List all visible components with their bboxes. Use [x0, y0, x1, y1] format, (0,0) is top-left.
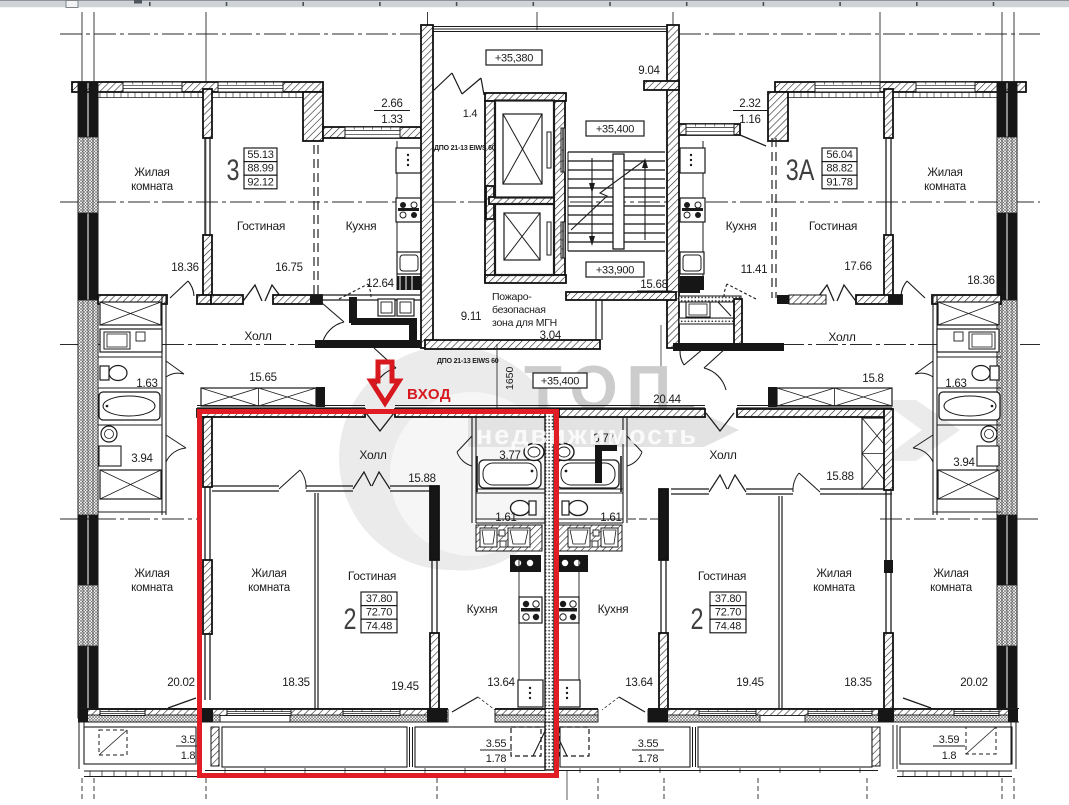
svg-text:Холл: Холл: [828, 330, 856, 344]
svg-text:2: 2: [343, 602, 356, 635]
svg-text:1.8: 1.8: [942, 750, 957, 762]
svg-text:1.63: 1.63: [136, 378, 157, 390]
svg-text:Кухня: Кухня: [346, 219, 377, 233]
svg-text:Кухня: Кухня: [467, 602, 498, 616]
svg-text:13.64: 13.64: [487, 677, 515, 689]
svg-text:Жилая: Жилая: [816, 568, 851, 580]
svg-text:74.48: 74.48: [715, 620, 741, 632]
svg-text:92.12: 92.12: [247, 176, 273, 188]
svg-text:88.99: 88.99: [247, 163, 273, 175]
svg-text:15.65: 15.65: [249, 372, 277, 384]
svg-text:Жилая: Жилая: [933, 568, 968, 580]
svg-text:74.48: 74.48: [366, 620, 392, 632]
svg-text:1.63: 1.63: [945, 378, 966, 390]
svg-text:ДПО 21-13 EIWS 60: ДПО 21-13 EIWS 60: [434, 145, 496, 152]
svg-text:18.36: 18.36: [171, 262, 199, 274]
svg-text:Холл: Холл: [244, 329, 272, 343]
svg-text:17.66: 17.66: [844, 261, 872, 273]
svg-text:16.75: 16.75: [275, 262, 303, 274]
svg-text:недвижимость: недвижимость: [476, 420, 698, 450]
svg-text:2.32: 2.32: [739, 98, 760, 110]
svg-text:9.11: 9.11: [461, 311, 482, 323]
svg-text:Жилая: Жилая: [251, 568, 286, 580]
svg-text:3.55: 3.55: [638, 738, 659, 750]
svg-text:3А: 3А: [786, 153, 815, 186]
svg-text:2: 2: [690, 602, 703, 635]
svg-text:1.4: 1.4: [463, 108, 478, 120]
svg-text:Жилая: Жилая: [134, 167, 169, 179]
svg-text:комната: комната: [930, 582, 973, 594]
svg-text:20.02: 20.02: [167, 677, 195, 689]
svg-text:88.82: 88.82: [826, 163, 852, 175]
svg-text:37.80: 37.80: [366, 593, 392, 605]
svg-text:72.70: 72.70: [715, 607, 741, 619]
svg-text:Жилая: Жилая: [927, 167, 962, 179]
svg-text:комната: комната: [924, 181, 967, 193]
svg-text:комната: комната: [248, 582, 291, 594]
svg-text:18.35: 18.35: [282, 677, 310, 689]
svg-text:3.55: 3.55: [486, 738, 507, 750]
svg-text:15.88: 15.88: [826, 471, 854, 483]
svg-text:1.61: 1.61: [600, 512, 621, 524]
svg-text:15.68: 15.68: [640, 279, 668, 291]
svg-text:13.64: 13.64: [625, 677, 653, 689]
svg-text:15.8: 15.8: [862, 373, 883, 385]
svg-text:комната: комната: [131, 582, 174, 594]
svg-text:1.78: 1.78: [486, 753, 507, 765]
svg-text:20.02: 20.02: [960, 677, 988, 689]
svg-text:3.77: 3.77: [499, 450, 520, 462]
svg-text:1.61: 1.61: [495, 512, 516, 524]
svg-text:9.04: 9.04: [638, 65, 660, 77]
svg-text:3.59: 3.59: [939, 734, 960, 746]
svg-text:19.45: 19.45: [736, 677, 764, 689]
svg-text:37.80: 37.80: [715, 593, 741, 605]
svg-text:безопасная: безопасная: [492, 304, 546, 316]
svg-text:2.66: 2.66: [381, 98, 402, 110]
svg-text:20.44: 20.44: [653, 394, 681, 406]
svg-text:12.64: 12.64: [366, 278, 394, 290]
svg-text:3.94: 3.94: [953, 457, 975, 469]
svg-text:3: 3: [226, 153, 239, 186]
svg-text:18.36: 18.36: [967, 275, 995, 287]
svg-text:Холл: Холл: [359, 448, 387, 462]
svg-text:Жилая: Жилая: [134, 568, 169, 580]
svg-text:Холл: Холл: [709, 448, 737, 462]
svg-text:Пожаро-: Пожаро-: [492, 291, 532, 303]
svg-text:зона для МГН: зона для МГН: [492, 317, 557, 329]
svg-text:18.35: 18.35: [844, 677, 872, 689]
svg-text:+35,400: +35,400: [541, 376, 579, 388]
svg-text:56.04: 56.04: [826, 149, 852, 161]
svg-text:15.88: 15.88: [408, 473, 436, 485]
svg-text:1.16: 1.16: [739, 114, 760, 126]
svg-text:1.33: 1.33: [381, 114, 402, 126]
svg-text:1.78: 1.78: [638, 753, 659, 765]
svg-text:91.78: 91.78: [826, 176, 852, 188]
svg-text:+33,900: +33,900: [596, 265, 634, 277]
svg-text:Гостиная: Гостиная: [698, 569, 746, 583]
svg-text:1.8: 1.8: [181, 750, 196, 762]
svg-text:комната: комната: [813, 582, 856, 594]
svg-text:ДПО 21-13 EIWS 60: ДПО 21-13 EIWS 60: [437, 358, 499, 365]
svg-text:3.94: 3.94: [131, 453, 153, 465]
svg-text:комната: комната: [131, 181, 174, 193]
svg-text:1650: 1650: [504, 366, 516, 390]
svg-text:Кухня: Кухня: [598, 602, 629, 616]
svg-text:Гостиная: Гостиная: [809, 219, 857, 233]
svg-text:19.45: 19.45: [391, 681, 419, 693]
svg-text:Гостиная: Гостиная: [348, 569, 396, 583]
svg-text:Гостиная: Гостиная: [237, 219, 285, 233]
svg-text:11.41: 11.41: [741, 264, 768, 276]
svg-text:72.70: 72.70: [366, 607, 392, 619]
svg-text:Кухня: Кухня: [726, 219, 757, 233]
svg-text:3.5: 3.5: [181, 734, 196, 746]
svg-text:ВХОД: ВХОД: [407, 386, 451, 403]
svg-text:+35,380: +35,380: [495, 53, 533, 65]
svg-text:+35,400: +35,400: [596, 124, 634, 136]
svg-text:55.13: 55.13: [247, 149, 273, 161]
